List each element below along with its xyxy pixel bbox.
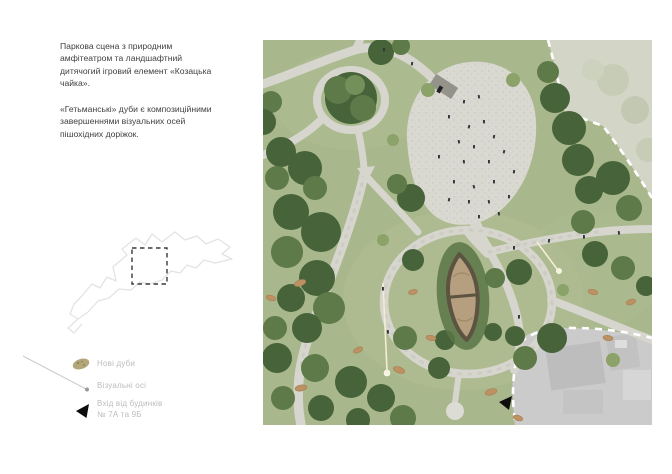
legend-label-entrance-line2: № 7А та 9Б [97, 410, 142, 419]
presentation-page: Паркова сцена з природним амфітеатром та… [0, 0, 672, 474]
small-round-plaza [446, 402, 464, 420]
legend-label-new-oaks: Нові дуби [97, 359, 135, 368]
legend-label-visual-axes: Візуальні осі [97, 381, 146, 390]
description-text: Паркова сцена з природним амфітеатром та… [60, 40, 223, 153]
description-paragraph-1: Паркова сцена з природним амфітеатром та… [60, 40, 223, 90]
legend-label-entrance-line1: Вхід від будинків [97, 399, 162, 408]
site-outline [68, 232, 232, 333]
oak-tree-icon [71, 357, 90, 372]
entrance-arrow-icon [76, 404, 89, 418]
site-locator-map [52, 220, 237, 338]
description-paragraph-2: «Гетьманські» дуби є композиційними заве… [60, 103, 223, 140]
park-plan-rendering [263, 40, 652, 425]
focus-area-dashed-square [132, 248, 167, 284]
